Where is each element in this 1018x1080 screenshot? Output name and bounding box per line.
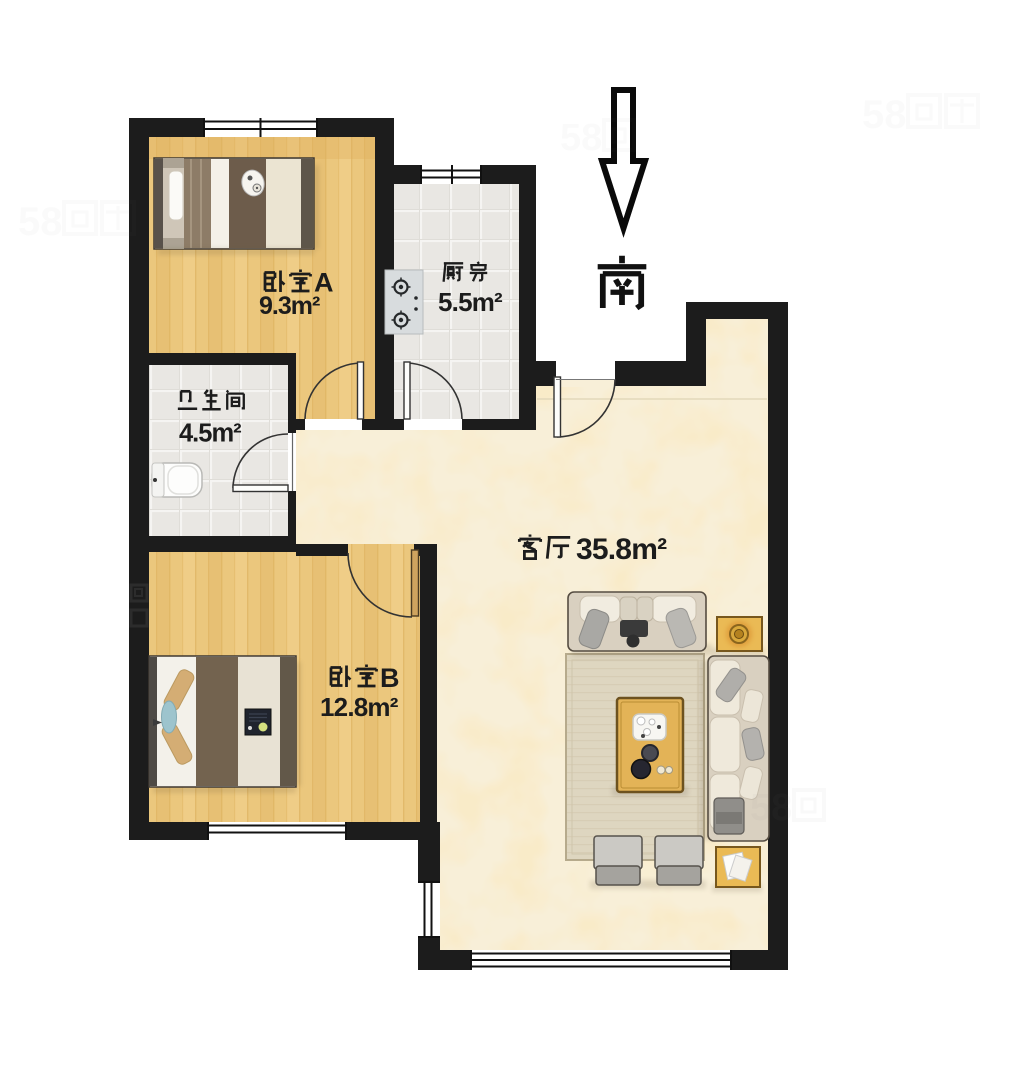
svg-text:35.8m²: 35.8m² [576,533,667,566]
svg-text:12.8m²: 12.8m² [320,692,399,722]
svg-text:B: B [380,663,400,693]
svg-text:58: 58 [18,200,63,244]
svg-text:58: 58 [862,93,907,137]
svg-text:58: 58 [750,787,792,829]
svg-text:4.5m²: 4.5m² [179,420,241,448]
svg-text:5.5m²: 5.5m² [438,287,503,317]
svg-text:58: 58 [560,117,602,159]
svg-text:9.3m²: 9.3m² [259,292,320,320]
